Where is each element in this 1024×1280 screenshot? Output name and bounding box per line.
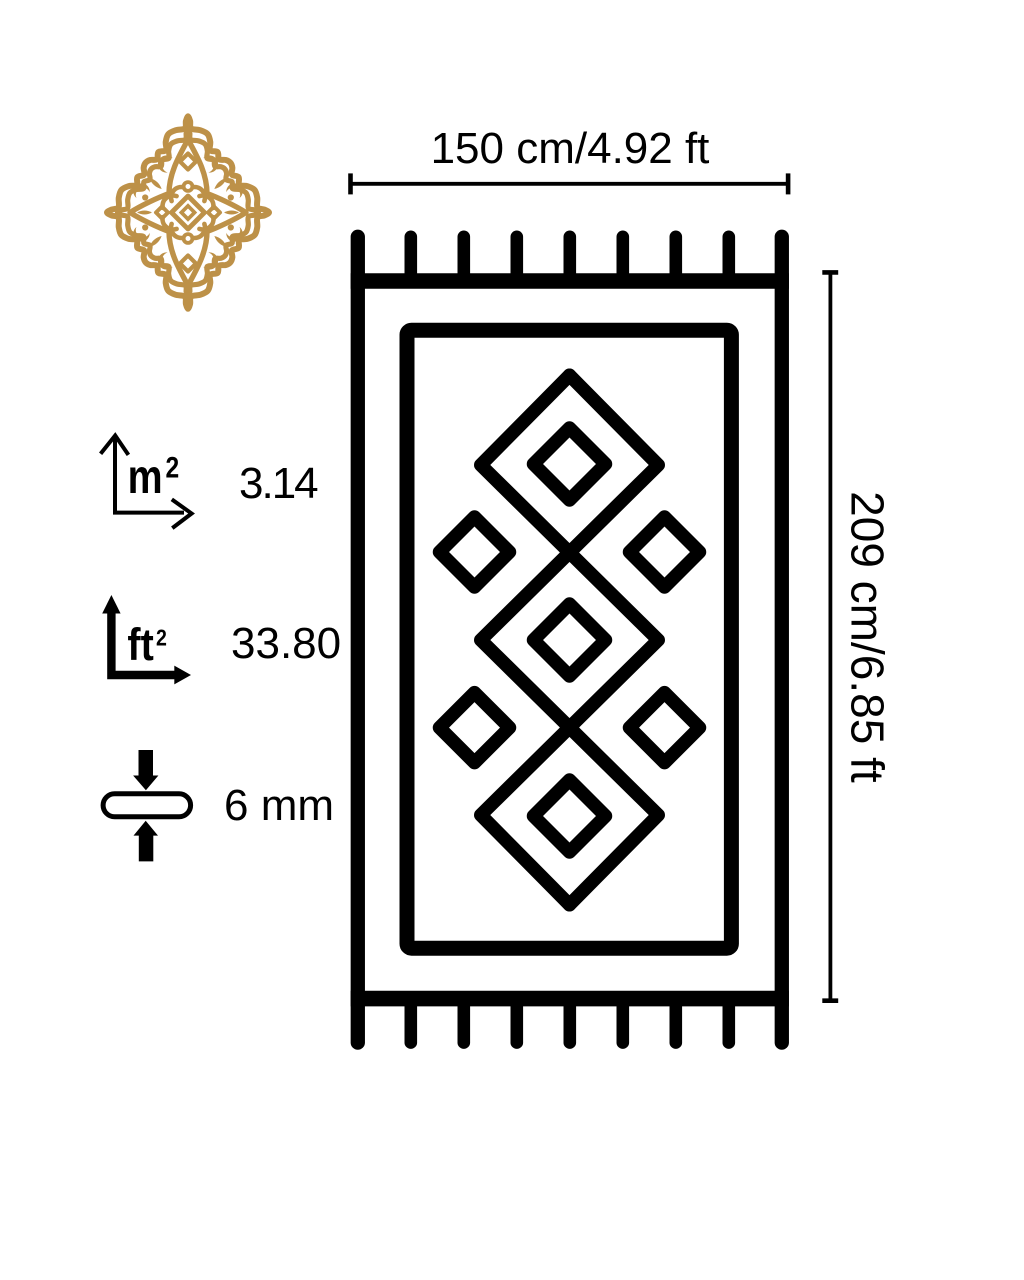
svg-text:150 cm/4.92 ft: 150 cm/4.92 ft [431,124,710,173]
svg-text:6 mm: 6 mm [224,781,334,830]
svg-text:2: 2 [166,450,180,484]
svg-text:33.80: 33.80 [231,619,341,668]
svg-text:ft: ft [127,620,153,670]
svg-text:209 cm/6.85 ft: 209 cm/6.85 ft [842,491,894,783]
svg-text:3.14: 3.14 [239,459,318,508]
svg-text:m: m [128,450,163,504]
svg-text:2: 2 [156,625,167,651]
